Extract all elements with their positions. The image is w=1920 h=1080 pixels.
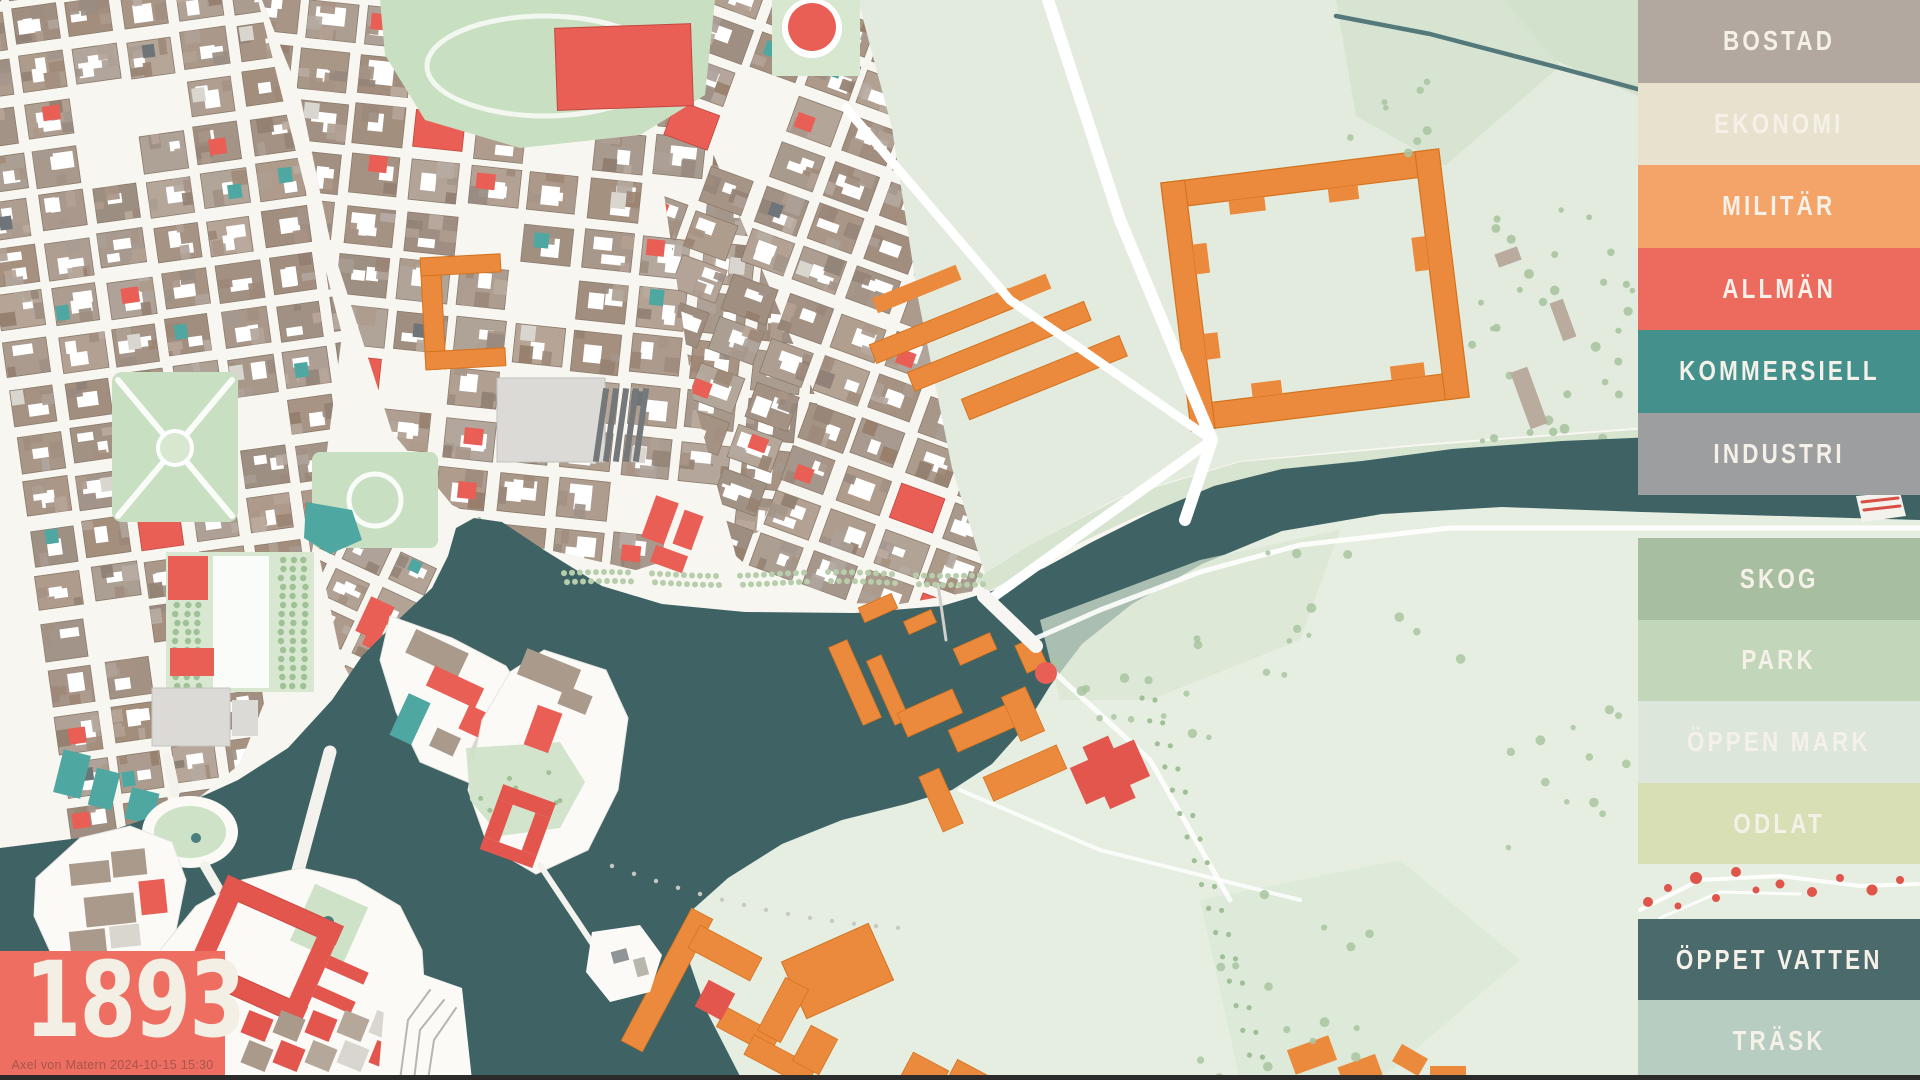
credit-label: Axel von Matern 2024-10-15 15:30 bbox=[0, 1058, 225, 1072]
year-label: 1893 bbox=[25, 939, 201, 1061]
map-poster: BOSTADEKONOMIMILITÄRALLMÄNKOMMERSIELLIND… bbox=[0, 0, 1920, 1080]
bottom-bar bbox=[0, 1075, 1920, 1080]
year-box: 1893 Axel von Matern 2024-10-15 15:30 bbox=[0, 951, 225, 1076]
map-canvas bbox=[0, 0, 1920, 1080]
